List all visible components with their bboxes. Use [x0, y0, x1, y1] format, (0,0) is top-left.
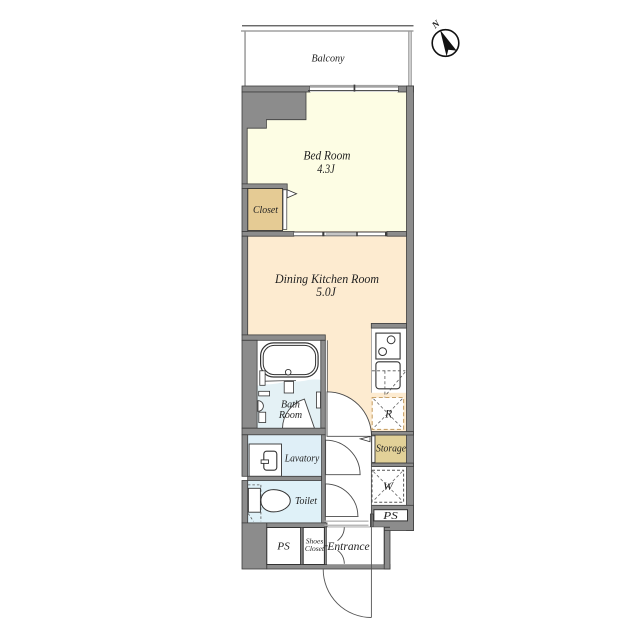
svg-text:Lavatory: Lavatory [284, 454, 320, 465]
svg-text:PS: PS [276, 541, 290, 553]
svg-text:Balcony: Balcony [312, 53, 345, 65]
svg-text:Room: Room [278, 410, 302, 421]
svg-text:Closet: Closet [305, 544, 325, 553]
svg-text:Entrance: Entrance [326, 541, 369, 553]
svg-text:PS: PS [382, 510, 398, 522]
svg-text:4.3J: 4.3J [317, 161, 335, 176]
svg-text:5.0J: 5.0J [316, 284, 337, 299]
svg-text:W: W [383, 479, 394, 493]
svg-text:Closet: Closet [253, 205, 278, 216]
svg-text:R: R [384, 409, 392, 421]
svg-text:Toilet: Toilet [295, 496, 318, 507]
svg-text:Bath: Bath [281, 400, 300, 411]
svg-text:Storage: Storage [376, 444, 407, 455]
